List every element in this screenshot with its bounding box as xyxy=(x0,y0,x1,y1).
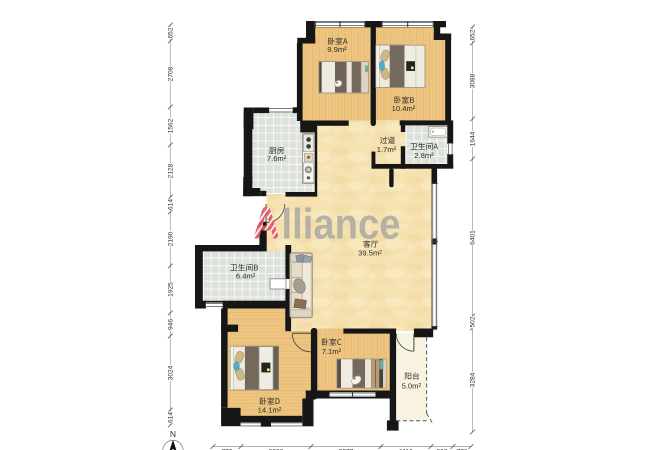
svg-text:6401: 6401 xyxy=(470,230,477,245)
svg-text:1562: 1562 xyxy=(167,118,174,133)
svg-text:9.9m²: 9.9m² xyxy=(327,45,347,54)
svg-text:7.6m²: 7.6m² xyxy=(267,154,287,163)
svg-text:614: 614 xyxy=(167,199,174,210)
svg-text:1644: 1644 xyxy=(470,131,477,146)
svg-text:502: 502 xyxy=(470,316,477,327)
svg-text:N: N xyxy=(170,429,176,439)
svg-text:lliance: lliance xyxy=(282,201,401,249)
svg-text:7.1m²: 7.1m² xyxy=(322,347,342,356)
svg-text:14.1m²: 14.1m² xyxy=(258,405,282,414)
svg-text:2708: 2708 xyxy=(167,66,174,81)
svg-text:6.4m²: 6.4m² xyxy=(236,271,256,280)
svg-text:614: 614 xyxy=(167,412,174,423)
svg-text:1925: 1925 xyxy=(167,282,174,297)
svg-text:39.5m²: 39.5m² xyxy=(358,249,382,258)
svg-text:1.7m²: 1.7m² xyxy=(377,145,397,154)
svg-text:2.8m²: 2.8m² xyxy=(414,151,434,160)
svg-text:A: A xyxy=(253,198,281,249)
svg-text:3088: 3088 xyxy=(470,73,477,88)
svg-text:3284: 3284 xyxy=(470,372,477,387)
svg-text:652: 652 xyxy=(470,29,477,40)
svg-text:5.0m²: 5.0m² xyxy=(402,382,422,391)
svg-text:652: 652 xyxy=(167,27,174,38)
svg-text:3024: 3024 xyxy=(167,365,174,380)
svg-text:2128: 2128 xyxy=(167,163,174,178)
svg-text:10.4m²: 10.4m² xyxy=(392,104,416,113)
svg-text:2190: 2190 xyxy=(167,231,174,246)
svg-text:946: 946 xyxy=(167,319,174,330)
